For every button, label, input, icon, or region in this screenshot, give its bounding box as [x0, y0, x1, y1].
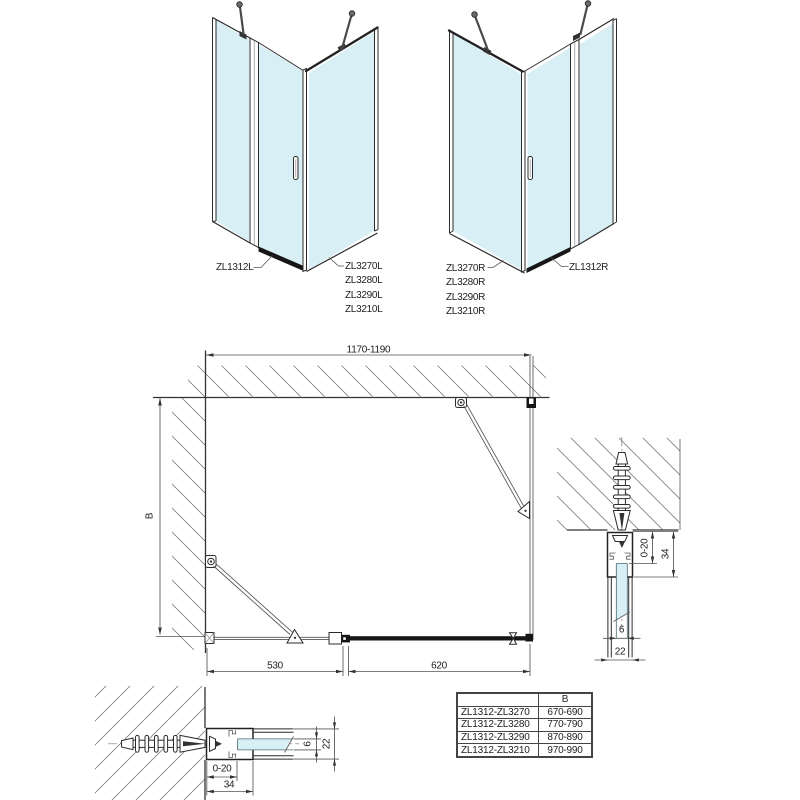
section-bottom-adjustment-dimension: 0-20	[213, 763, 232, 774]
iso-right-side-label-1: ZL3270R	[446, 262, 485, 277]
section-side-width-dimension: 22	[615, 646, 626, 657]
technical-drawing-sheet: ZL1312L ZL3270L ZL3280L ZL3290L ZL3210L …	[0, 0, 800, 800]
plan-width-dimension: 1170-1190	[347, 344, 391, 355]
size-table-b-range: 870-890	[539, 731, 593, 744]
plan-fixed-segment-dimension: 530	[267, 660, 283, 671]
iso-left-side-label-3: ZL3290L	[345, 289, 382, 304]
size-table: B ZL1312-ZL3270 670-690 ZL1312-ZL3280 77…	[456, 692, 593, 758]
plan-door-segment-dimension: 620	[431, 661, 447, 672]
size-table-combination: ZL1312-ZL3270	[457, 706, 539, 719]
iso-right-side-label-4: ZL3210R	[446, 305, 485, 320]
iso-left-front-label: ZL1312L	[216, 262, 253, 273]
iso-left-side-label-2: ZL3280L	[345, 274, 382, 289]
size-table-header-empty	[457, 693, 539, 706]
plan-view	[153, 351, 550, 677]
size-table-header-b: B	[539, 693, 593, 706]
section-side-adjustment-dimension: 0-20	[640, 538, 651, 557]
section-side-glass-dimension: 6	[619, 625, 624, 636]
iso-left-side-label-group: ZL3270L ZL3280L ZL3290L ZL3210L	[345, 260, 382, 318]
iso-right-side-label-group: ZL3270R ZL3280R ZL3290R ZL3210R	[446, 262, 485, 320]
section-side-depth-dimension: 34	[660, 549, 671, 560]
size-table-b-range: 770-790	[539, 719, 593, 732]
section-bottom-width-dimension: 22	[322, 739, 333, 750]
section-bottom-glass-dimension: 6	[302, 741, 313, 746]
size-table-row: ZL1312-ZL3270 670-690	[457, 706, 592, 719]
iso-right-side-label-2: ZL3280R	[446, 276, 485, 291]
iso-left-side-label-1: ZL3270L	[345, 260, 382, 275]
section-bottom-depth-dimension: 34	[224, 779, 235, 790]
size-table-row: ZL1312-ZL3290 870-890	[457, 731, 592, 744]
size-table-header-row: B	[457, 693, 592, 706]
size-table-combination: ZL1312-ZL3280	[457, 719, 539, 732]
plan-wall-hatch-top	[188, 366, 546, 397]
size-table-b-range: 970-990	[539, 744, 593, 757]
size-table-combination: ZL1312-ZL3210	[457, 744, 539, 757]
plan-wall-hatch-left	[172, 398, 206, 650]
plan-depth-dimension: B	[145, 513, 156, 519]
iso-right-front-label: ZL1312R	[569, 262, 608, 273]
size-table-combination: ZL1312-ZL3290	[457, 731, 539, 744]
iso-view-right	[449, 1, 617, 273]
size-table-row: ZL1312-ZL3280 770-790	[457, 719, 592, 732]
iso-left-side-label-4: ZL3210L	[345, 303, 382, 318]
size-table-row: ZL1312-ZL3210 970-990	[457, 744, 592, 757]
iso-view-left	[213, 2, 379, 272]
drawing-canvas	[0, 0, 800, 800]
iso-right-side-label-3: ZL3290R	[446, 291, 485, 306]
size-table-b-range: 670-690	[539, 706, 593, 719]
